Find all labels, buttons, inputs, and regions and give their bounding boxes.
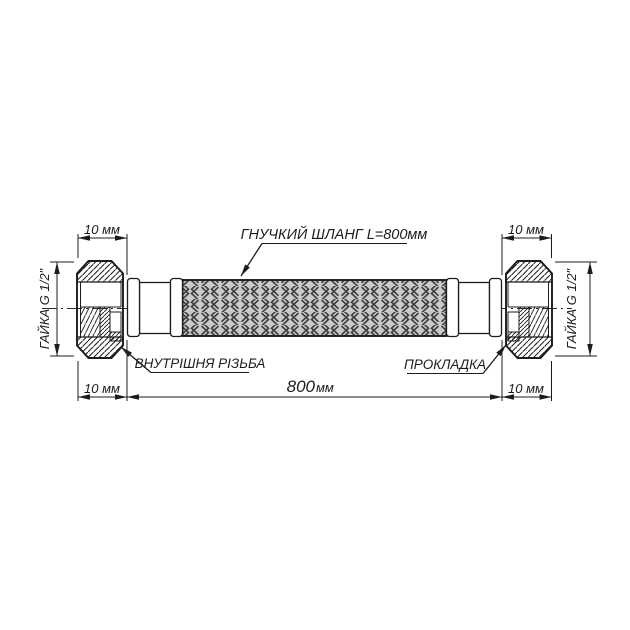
dim-nut-top-left: 10 мм [84,222,120,237]
label-gasket: ПРОКЛАДКА [404,357,486,372]
label-nut-left: ГАЙКА G 1/2" [36,267,52,349]
dim-nut-bottom-left: 10 мм [84,381,120,396]
hose-technical-drawing: 10 мм 10 мм 10 мм 10 мм 800 мм ГАЙКА G 1… [0,0,630,630]
label-internal-thread: ВНУТРІШНЯ РІЗЬБА [135,356,266,371]
label-nut-right: ГАЙКА G 1/2" [563,267,579,349]
dim-nut-bottom-right: 10 мм [508,381,544,396]
label-hose-title: ГНУЧКИЙ ШЛАНГ L=800мм [241,225,428,243]
drawing-canvas: 10 мм 10 мм 10 мм 10 мм 800 мм ГАЙКА G 1… [0,0,630,630]
dim-nut-top-right: 10 мм [508,222,544,237]
right-ferrule [447,279,502,337]
dim-total-length-value: 800 [287,377,316,396]
dim-total-length-unit: мм [316,380,334,395]
braided-hose [183,280,447,336]
right-gasket [508,332,519,341]
left-ferrule [128,279,183,337]
left-gasket [110,332,121,341]
